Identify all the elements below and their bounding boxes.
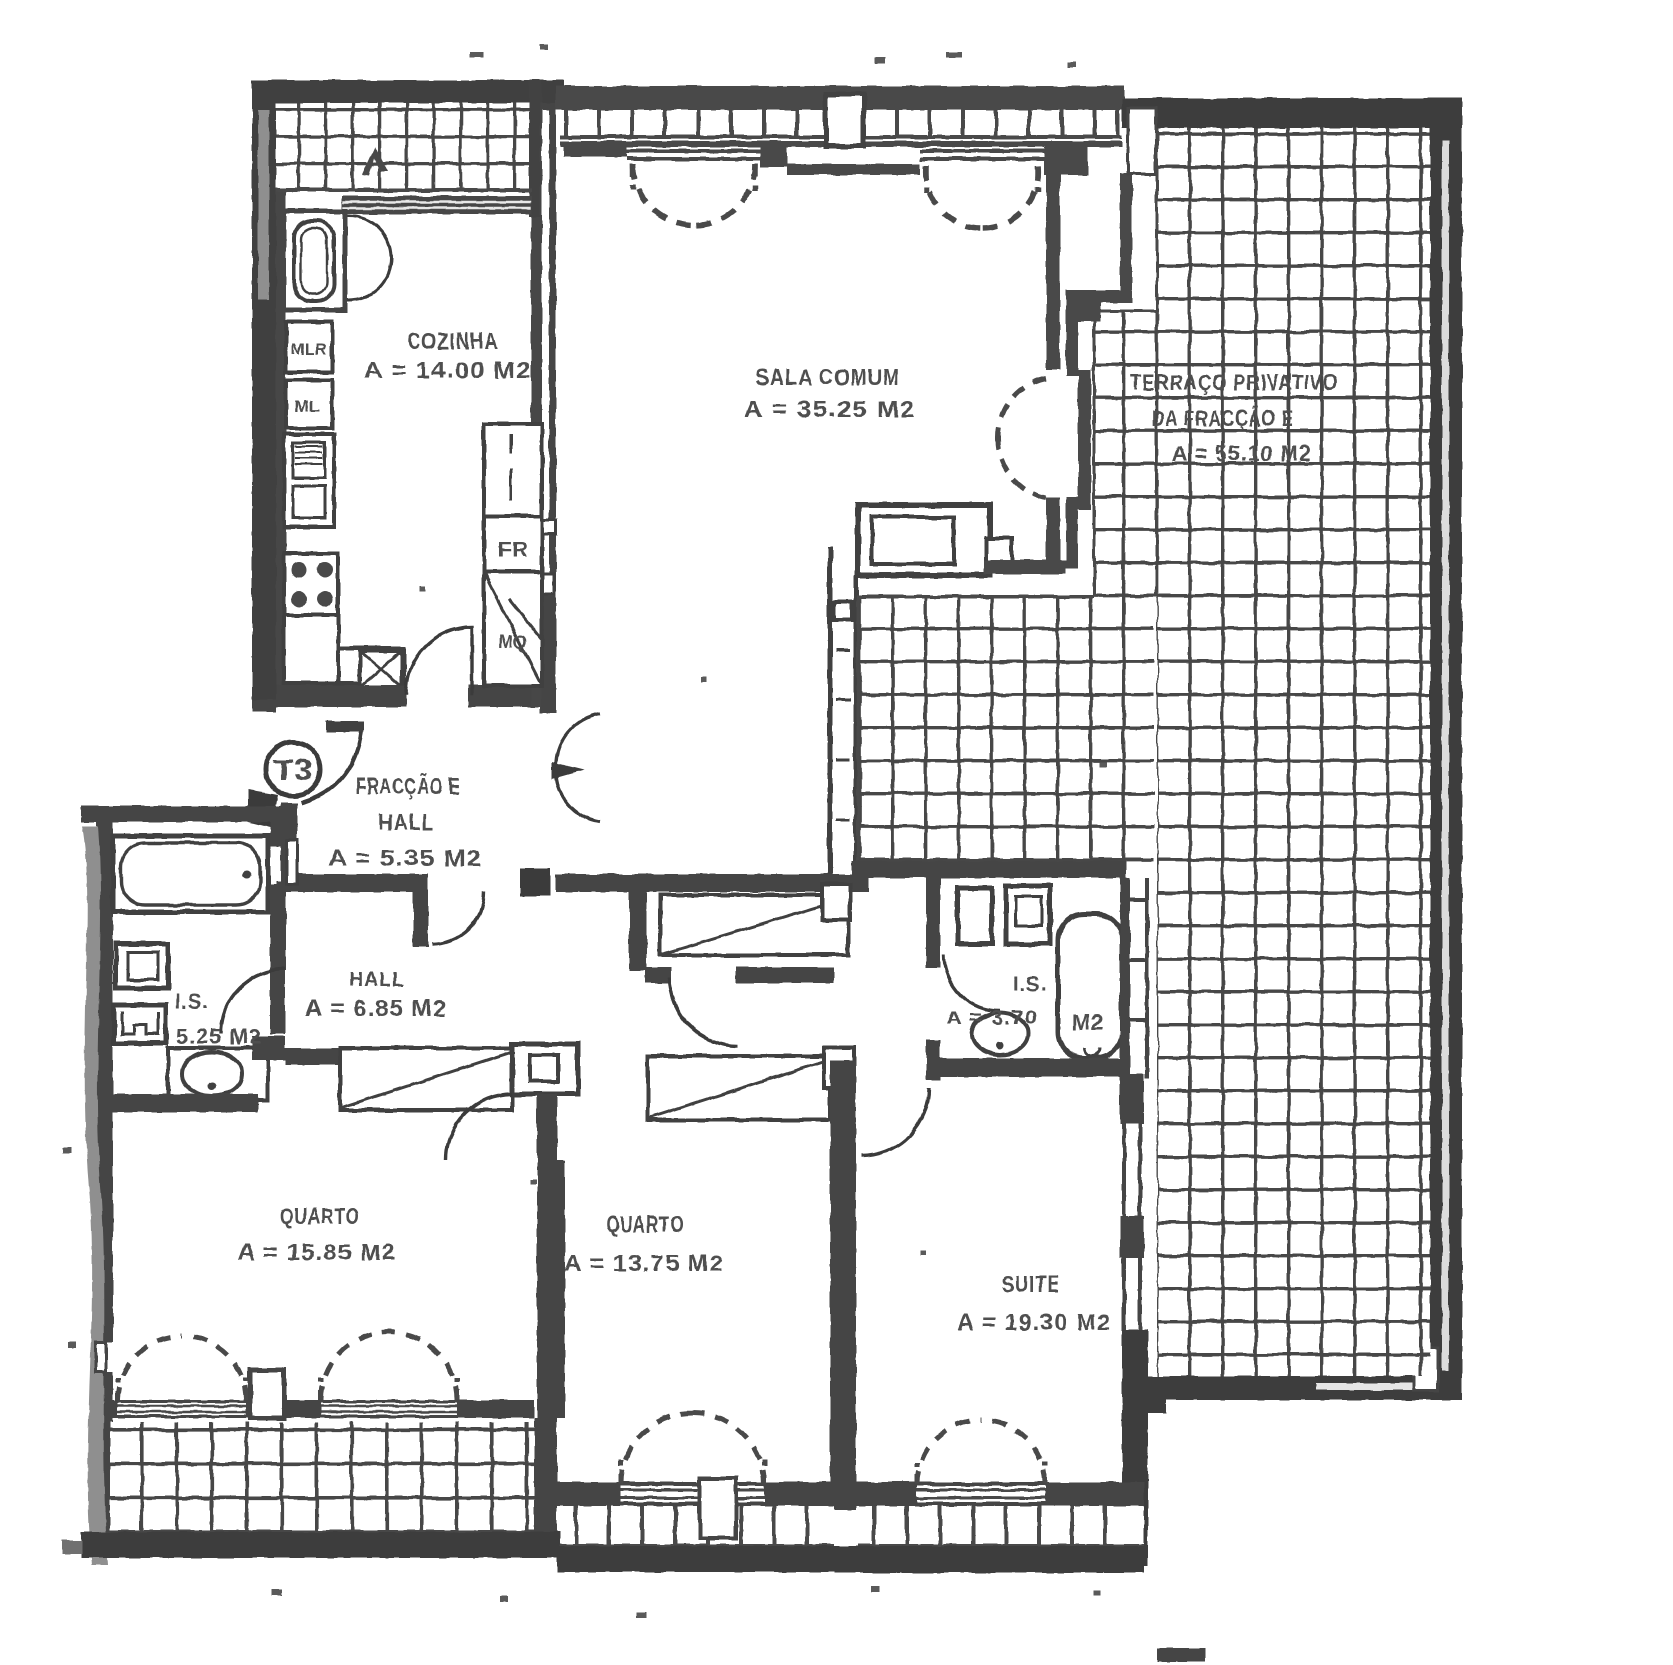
svg-text:A = 35.25 M2: A = 35.25 M2: [744, 396, 916, 422]
svg-text:I.S.: I.S.: [175, 989, 209, 1014]
svg-text:M2: M2: [1072, 1010, 1104, 1035]
svg-text:A = 55.10 M2: A = 55.10 M2: [1172, 441, 1312, 466]
svg-text:QUARTO: QUARTO: [280, 1203, 360, 1229]
svg-text:ML: ML: [294, 397, 320, 416]
svg-text:T3: T3: [273, 754, 313, 787]
svg-text:A = 19.30 M2: A = 19.30 M2: [957, 1309, 1111, 1335]
svg-text:DA FRACÇÃO E: DA FRACÇÃO E: [1152, 406, 1294, 431]
svg-text:A = 5.35 M2: A = 5.35 M2: [328, 845, 482, 871]
svg-text:HALL: HALL: [378, 809, 435, 835]
svg-text:A = 14.00 M2: A = 14.00 M2: [364, 357, 532, 383]
svg-text:QUARTO: QUARTO: [606, 1211, 684, 1237]
svg-text:TERRAÇO PRIVATIVO: TERRAÇO PRIVATIVO: [1130, 370, 1338, 395]
svg-text:MLR: MLR: [291, 340, 327, 359]
svg-text:FR: FR: [498, 539, 529, 561]
svg-text:A = 6.85 M2: A = 6.85 M2: [305, 995, 447, 1021]
svg-text:A = 13.75 M2: A = 13.75 M2: [564, 1250, 724, 1276]
svg-text:I.S.: I.S.: [1013, 973, 1047, 996]
svg-text:SUITE: SUITE: [1002, 1271, 1060, 1297]
svg-text:COZINHA: COZINHA: [407, 328, 499, 354]
svg-text:MQ: MQ: [499, 632, 527, 652]
svg-text:FRACÇÃO E: FRACÇÃO E: [356, 772, 460, 799]
svg-text:A = 15.85 M2: A = 15.85 M2: [238, 1239, 396, 1265]
svg-text:HALL: HALL: [349, 969, 405, 991]
svg-text:A = 3.70: A = 3.70: [946, 1008, 1038, 1029]
svg-text:5.25 M2: 5.25 M2: [176, 1024, 262, 1049]
svg-text:SALA COMUM: SALA COMUM: [756, 364, 900, 390]
